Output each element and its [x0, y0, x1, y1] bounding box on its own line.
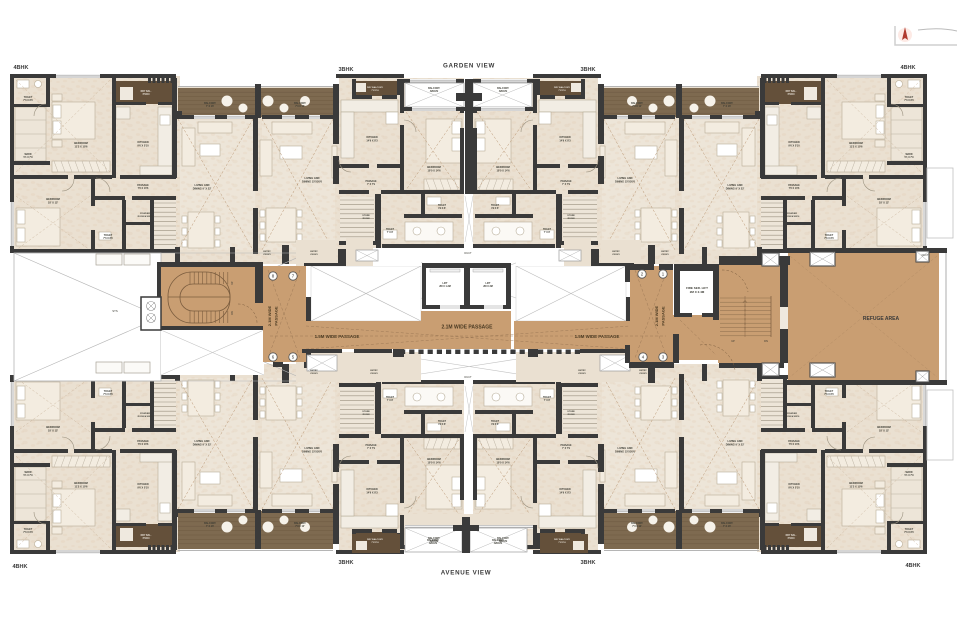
svg-text:TOILET7'6 X 8'0: TOILET7'6 X 8'0	[23, 96, 33, 102]
svg-text:ENTRY6'0X6'0: ENTRY6'0X6'0	[578, 370, 586, 375]
svg-text:TOILET7'6 X 8'0: TOILET7'6 X 8'0	[824, 234, 834, 240]
svg-text:TOILET7'6 X 8'0: TOILET7'6 X 8'0	[23, 528, 33, 534]
svg-text:PASSAGE7'6 X 13'6: PASSAGE7'6 X 13'6	[788, 184, 800, 190]
svg-text:2.1M WIDE: 2.1M WIDE	[267, 305, 272, 326]
svg-text:BEDROOM11'2 X 10'6: BEDROOM11'2 X 10'6	[849, 481, 863, 488]
svg-text:TOILET4'9 X 8': TOILET4'9 X 8'	[438, 421, 447, 426]
svg-text:KITCHEN14'9 X 8'3: KITCHEN14'9 X 8'3	[366, 488, 378, 494]
svg-text:BEDROOM10'0 X 14'6: BEDROOM10'0 X 14'6	[496, 165, 510, 172]
svg-text:PASSAGE7'6 X 13'6: PASSAGE7'6 X 13'6	[137, 184, 149, 190]
svg-text:3BHK: 3BHK	[581, 560, 596, 566]
svg-text:TOILET4'9 X 8': TOILET4'9 X 8'	[438, 205, 447, 210]
svg-text:REFUGE AREA: REFUGE AREA	[863, 316, 900, 322]
svg-text:3BHK: 3BHK	[339, 67, 354, 73]
svg-text:PASSAGE7'6 X 13'6: PASSAGE7'6 X 13'6	[137, 440, 149, 446]
svg-text:TOILET7'6 X 8'0: TOILET7'6 X 8'0	[103, 390, 113, 396]
svg-text:BEDROOM11'2 X 10'6: BEDROOM11'2 X 10'6	[74, 481, 88, 488]
svg-text:KITCHEN9'6 X 5'10: KITCHEN9'6 X 5'10	[137, 141, 149, 147]
svg-text:ENTRY6'0X6'0: ENTRY6'0X6'0	[639, 370, 647, 375]
svg-text:TOILET7'6 X 8'0: TOILET7'6 X 8'0	[904, 96, 914, 102]
svg-text:KITCHEN9'6 X 5'10: KITCHEN9'6 X 5'10	[137, 483, 149, 489]
svg-text:KITCHEN14'9 X 8'3: KITCHEN14'9 X 8'3	[559, 488, 571, 494]
svg-text:ENTRY6'0X6'0: ENTRY6'0X6'0	[310, 251, 318, 256]
svg-text:3BHK: 3BHK	[339, 560, 354, 566]
svg-text:BEDROOM18' X 12': BEDROOM18' X 12'	[46, 197, 60, 204]
svg-text:TOILET4'9 X 8': TOILET4'9 X 8'	[491, 205, 500, 210]
svg-text:STS: STS	[112, 309, 118, 313]
svg-text:BALCONY7'3 X 12': BALCONY7'3 X 12'	[631, 522, 643, 528]
svg-text:4BHK: 4BHK	[14, 65, 29, 71]
svg-text:DUCT: DUCT	[464, 251, 472, 255]
svg-text:TOILET4'9 X 8': TOILET4'9 X 8'	[491, 421, 500, 426]
svg-text:UP: UP	[731, 339, 735, 343]
svg-text:ENTRY6'0X6'0: ENTRY6'0X6'0	[370, 370, 378, 375]
svg-text:4BHK: 4BHK	[906, 563, 921, 569]
svg-text:KITCHEN9'6 X 5'10: KITCHEN9'6 X 5'10	[788, 141, 800, 147]
svg-text:ENTRY6'0X6'0: ENTRY6'0X6'0	[310, 370, 318, 375]
svg-text:DN: DN	[764, 339, 768, 343]
svg-text:BEDROOM18' X 12': BEDROOM18' X 12'	[46, 425, 60, 432]
svg-text:PASSAGE: PASSAGE	[274, 306, 279, 326]
svg-text:3BHK: 3BHK	[581, 67, 596, 73]
svg-text:LIVING ANDDINING 9' X 22': LIVING ANDDINING 9' X 22'	[726, 439, 745, 446]
svg-text:AVENUE VIEW: AVENUE VIEW	[441, 570, 492, 577]
svg-text:KITCHEN9'6 X 5'10: KITCHEN9'6 X 5'10	[788, 483, 800, 489]
svg-text:1.5M WIDE PASSAGE: 1.5M WIDE PASSAGE	[575, 334, 620, 339]
svg-text:ENTRY6'0X6'0: ENTRY6'0X6'0	[612, 251, 620, 256]
svg-text:TOILET7'6 X 8'0: TOILET7'6 X 8'0	[824, 390, 834, 396]
svg-text:PASSAGE: PASSAGE	[661, 306, 666, 326]
svg-text:KITCHEN14'9 X 8'3: KITCHEN14'9 X 8'3	[366, 136, 378, 142]
svg-text:BEDROOM10'0 X 14'6: BEDROOM10'0 X 14'6	[496, 457, 510, 464]
svg-text:ENTRY6'0X6'0: ENTRY6'0X6'0	[661, 251, 669, 256]
svg-text:2.1M WIDE PASSAGE: 2.1M WIDE PASSAGE	[441, 325, 493, 331]
svg-text:BALCONY7'3 X 12': BALCONY7'3 X 12'	[631, 102, 643, 108]
svg-text:BEDROOM11'2 X 10'6: BEDROOM11'2 X 10'6	[74, 141, 88, 148]
svg-text:DUCT: DUCT	[922, 254, 929, 257]
svg-text:ENTRY6'0X6'0: ENTRY6'0X6'0	[263, 251, 271, 256]
svg-text:LIVING ANDDINING 9' X 22': LIVING ANDDINING 9' X 22'	[726, 183, 745, 190]
svg-text:2.1M WIDE: 2.1M WIDE	[654, 305, 659, 326]
svg-text:PASSAGE7'6 X 13'6: PASSAGE7'6 X 13'6	[788, 440, 800, 446]
svg-text:1.5M WIDE PASSAGE: 1.5M WIDE PASSAGE	[315, 334, 360, 339]
svg-text:TOILET7'6 X 8'0: TOILET7'6 X 8'0	[904, 528, 914, 534]
svg-text:DN: DN	[232, 311, 234, 315]
svg-text:BEDROOM10'0 X 14'6: BEDROOM10'0 X 14'6	[427, 457, 441, 464]
svg-text:BALCONY7'3 X 12': BALCONY7'3 X 12'	[294, 102, 306, 108]
svg-text:4BHK: 4BHK	[13, 564, 28, 570]
svg-text:LIVING ANDDINING 9' X 22': LIVING ANDDINING 9' X 22'	[193, 183, 212, 190]
svg-text:BEDROOM18' X 12': BEDROOM18' X 12'	[877, 425, 891, 432]
svg-text:STOREROOM: STOREROOM	[567, 215, 575, 220]
svg-text:STOREROOM: STOREROOM	[362, 215, 370, 220]
svg-text:BEDROOM18' X 12': BEDROOM18' X 12'	[877, 197, 891, 204]
svg-text:BEDROOM10'0 X 14'6: BEDROOM10'0 X 14'6	[427, 165, 441, 172]
svg-text:4BHK: 4BHK	[901, 65, 916, 71]
svg-text:DUCT: DUCT	[464, 375, 472, 379]
svg-text:BEDROOM11'2 X 10'6: BEDROOM11'2 X 10'6	[849, 141, 863, 148]
svg-text:KITCHEN14'9 X 8'3: KITCHEN14'9 X 8'3	[559, 136, 571, 142]
svg-text:GARDEN VIEW: GARDEN VIEW	[443, 63, 495, 70]
svg-text:UP: UP	[232, 281, 234, 285]
svg-text:TOILET7'6 X 8'0: TOILET7'6 X 8'0	[103, 234, 113, 240]
svg-text:STOREROOM: STOREROOM	[567, 411, 575, 416]
svg-text:BALCONY7'3 X 12': BALCONY7'3 X 12'	[294, 522, 306, 528]
svg-text:STOREROOM: STOREROOM	[362, 411, 370, 416]
svg-text:LIVING ANDDINING 9' X 22': LIVING ANDDINING 9' X 22'	[193, 439, 212, 446]
